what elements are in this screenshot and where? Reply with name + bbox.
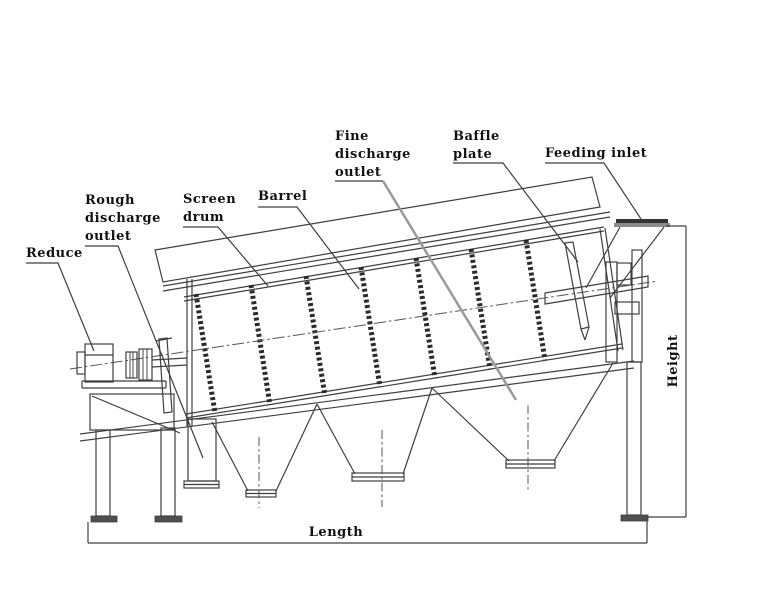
svg-text:Screen: Screen [183, 192, 236, 207]
label-fine-discharge-outlet: Fine discharge outlet [335, 129, 411, 180]
feeding-inlet-leader [545, 163, 641, 219]
svg-text:outlet: outlet [335, 165, 381, 180]
svg-text:Rough: Rough [85, 193, 135, 208]
inlet-plate-top [616, 219, 668, 223]
coupling-half-right [139, 349, 152, 380]
drive-shaft [152, 358, 187, 360]
trommel-screen-diagram: Height Length Reduce Rough discharge out… [0, 0, 759, 603]
middle-foot [155, 516, 182, 522]
reducer-body [85, 344, 113, 382]
inlet-chute-left [586, 227, 620, 288]
fine-discharge-outlet-leader [383, 181, 516, 400]
label-reduce: Reduce [26, 246, 83, 261]
feeding-inlet-assembly [545, 219, 670, 362]
fine-discharge-hopper-2 [317, 388, 432, 507]
right-foot [621, 515, 648, 521]
reducer-drive-assembly [77, 338, 187, 433]
screen-ring-bar [526, 240, 545, 360]
left-leg [96, 430, 110, 516]
height-dimension: Height [648, 226, 686, 517]
screen-drum-leader [183, 227, 268, 286]
length-dimension-label: Length [309, 525, 363, 540]
screen-ring-bar [306, 276, 325, 396]
svg-text:discharge: discharge [335, 147, 411, 162]
screen-ring-bar [361, 267, 380, 387]
svg-text:Fine: Fine [335, 129, 369, 144]
screen-ring-bar [251, 285, 270, 405]
left-foot [91, 516, 117, 522]
reducer-flange [77, 352, 85, 374]
reduce-leader [26, 263, 94, 351]
inlet-plate-bottom [614, 223, 670, 227]
screen-drum-body [184, 227, 623, 426]
screen-ring-bar [416, 258, 435, 378]
middle-leg [161, 428, 175, 516]
height-dimension-label: Height [666, 334, 681, 387]
baffle-plate-part [565, 242, 589, 340]
fine-discharge-hopper-1 [212, 404, 317, 508]
label-screen-drum: Screen drum [183, 192, 236, 225]
length-dimension: Length [88, 521, 647, 543]
label-baffle-plate: Baffle plate [453, 129, 500, 162]
svg-text:outlet: outlet [85, 229, 131, 244]
label-rough-discharge-outlet: Rough discharge outlet [85, 193, 161, 244]
screen-ring-bar [196, 294, 215, 413]
svg-text:plate: plate [453, 147, 492, 162]
label-barrel: Barrel [258, 189, 307, 204]
coupling-half-left [126, 352, 137, 378]
end-bearing-lower [615, 302, 639, 314]
label-feeding-inlet: Feeding inlet [545, 146, 647, 161]
svg-text:discharge: discharge [85, 211, 161, 226]
svg-text:drum: drum [183, 210, 224, 225]
svg-text:Baffle: Baffle [453, 129, 500, 144]
right-leg [627, 362, 641, 515]
diagram-canvas: Height Length Reduce Rough discharge out… [0, 0, 759, 603]
baffle-plate-leader [453, 163, 578, 262]
